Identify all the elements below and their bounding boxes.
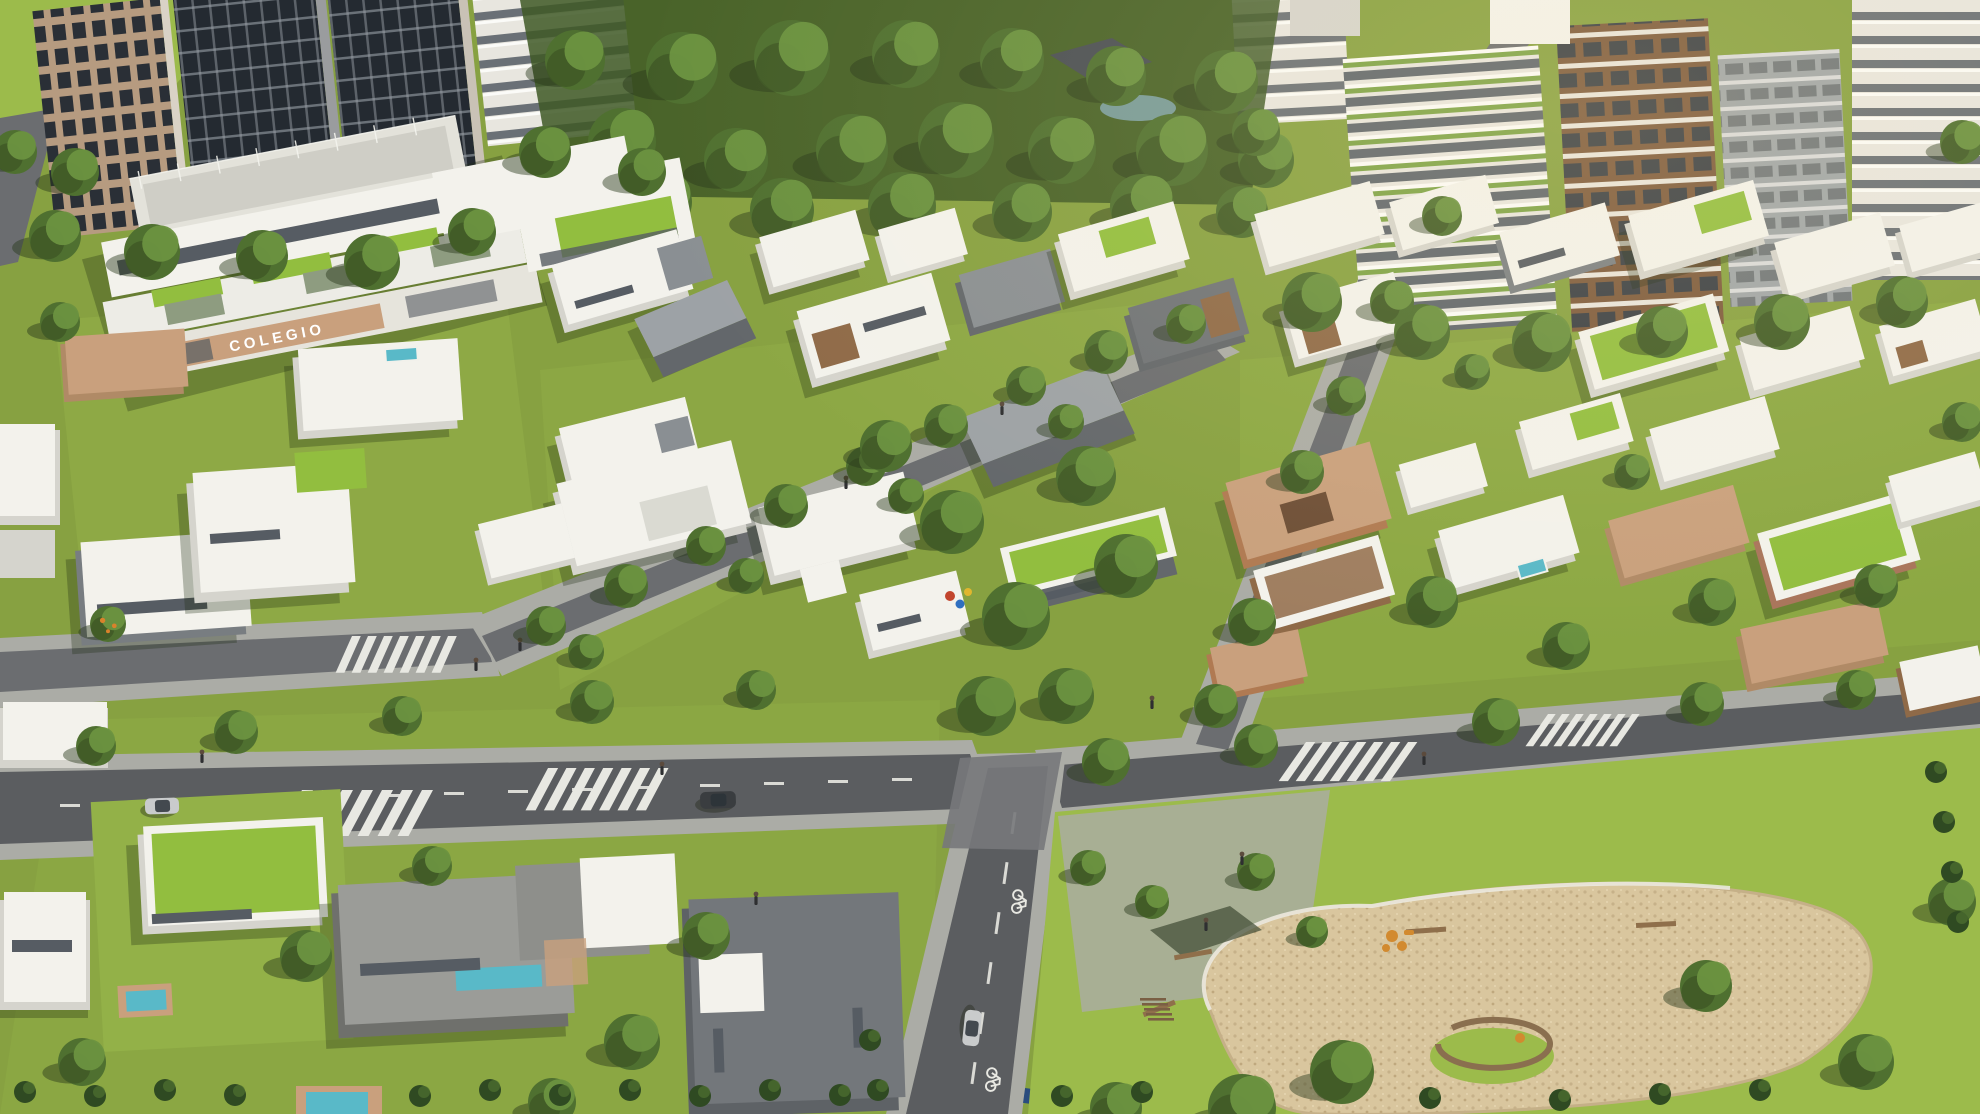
aerial-render-viewport: COLEGIO — [0, 0, 1980, 1114]
sunlight-overlay — [0, 0, 1980, 1114]
neighborhood-aerial-render: COLEGIO — [0, 0, 1980, 1114]
